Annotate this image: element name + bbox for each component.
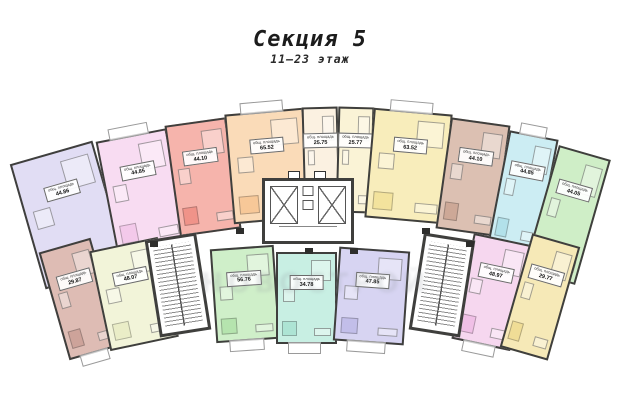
kitchen-counter [314,328,331,336]
area-caption: общ. площадь [293,277,320,282]
kitchen-counter [474,214,492,226]
balcony [461,339,495,357]
table-furniture [450,163,464,181]
table-furniture [503,177,516,195]
bathroom [182,206,199,226]
stair-treads [153,242,203,329]
apartment-area-label: общ. площадь29.87 [56,267,93,291]
apartment-area-label: общ. площадь44.85 [119,160,156,181]
kitchen-counter [532,336,548,350]
vent-shaft [350,248,358,254]
balcony [108,122,149,141]
apartment-area-label: общ. площадь63.52 [392,137,428,155]
shaft-box [303,186,314,196]
kitchen-counter [216,210,235,222]
balcony [519,122,547,139]
vent-shaft [305,248,313,254]
elevator-shaft-icon [318,186,346,224]
balcony [80,347,111,367]
vestibule-box [288,171,300,179]
bathroom [507,320,524,342]
vent-shaft [236,228,244,234]
area-value: 34.78 [293,282,320,288]
floorplan-image: Секция 5 11–23 этаж общ. площадь44.86общ… [0,0,620,414]
apartment-area-label: общ. площадь47.85 [355,271,391,288]
bathroom [372,191,393,211]
title-block: Секция 5 11–23 этаж [0,28,620,66]
area-value: 25.77 [342,140,369,147]
bathroom [443,201,460,221]
kitchen-counter [377,327,398,336]
stair-treads [417,242,467,329]
apartment-area-label: общ. площадь44.10 [182,147,218,167]
balcony [229,338,265,352]
table-furniture [283,289,295,302]
balcony [288,342,321,354]
table-furniture [57,291,72,309]
bathroom [494,217,509,238]
page-title: Секция 5 [0,28,620,51]
table-furniture [377,153,394,170]
table-furniture [237,157,254,174]
apartment-area-label: общ. площадь34.78 [289,275,324,290]
elevator-core [262,178,354,244]
bathroom [112,321,132,341]
page-subtitle: 11–23 этаж [0,52,620,66]
vestibule-box [314,171,326,179]
kitchen-counter [414,203,437,214]
apartment-area-label: общ. площадь48.07 [112,265,149,287]
table-furniture [468,277,483,295]
shaft-box [303,200,314,210]
elevator-shaft-icon [270,186,298,224]
apartment-unit: общ. площадь56.76 [210,245,280,343]
elevator-lobby [279,226,337,239]
vent-shaft [422,228,430,234]
apartment-area-label: общ. площадь25.77 [338,133,373,149]
table-furniture [546,197,561,218]
apartment-area-label: общ. площадь56.76 [226,269,262,286]
table-furniture [112,184,129,203]
apartment-area-label: общ. площадь44.86 [43,179,80,203]
balcony [389,99,433,115]
kitchen-counter [255,323,274,332]
balcony [239,100,283,116]
table-furniture [344,285,359,299]
area-value: 25.75 [307,140,334,147]
apartment-unit: общ. площадь34.78 [276,252,337,344]
apartment-area-label: общ. площадь25.75 [303,133,338,149]
table-furniture [178,168,192,186]
table-furniture [342,149,349,164]
table-furniture [105,287,122,304]
table-furniture [520,281,534,300]
bathroom [221,318,238,334]
vent-shaft [466,241,474,247]
table-furniture [33,207,55,230]
bathroom [67,328,85,349]
table-furniture [308,150,315,165]
table-furniture [220,286,234,300]
apartment-unit: общ. площадь47.85 [333,247,410,346]
vent-shaft [150,241,158,247]
bathroom [282,321,297,336]
bathroom [340,317,358,333]
bathroom [239,195,260,215]
balcony [346,339,386,354]
apartment-area-label: общ. площадь65.52 [249,137,285,155]
